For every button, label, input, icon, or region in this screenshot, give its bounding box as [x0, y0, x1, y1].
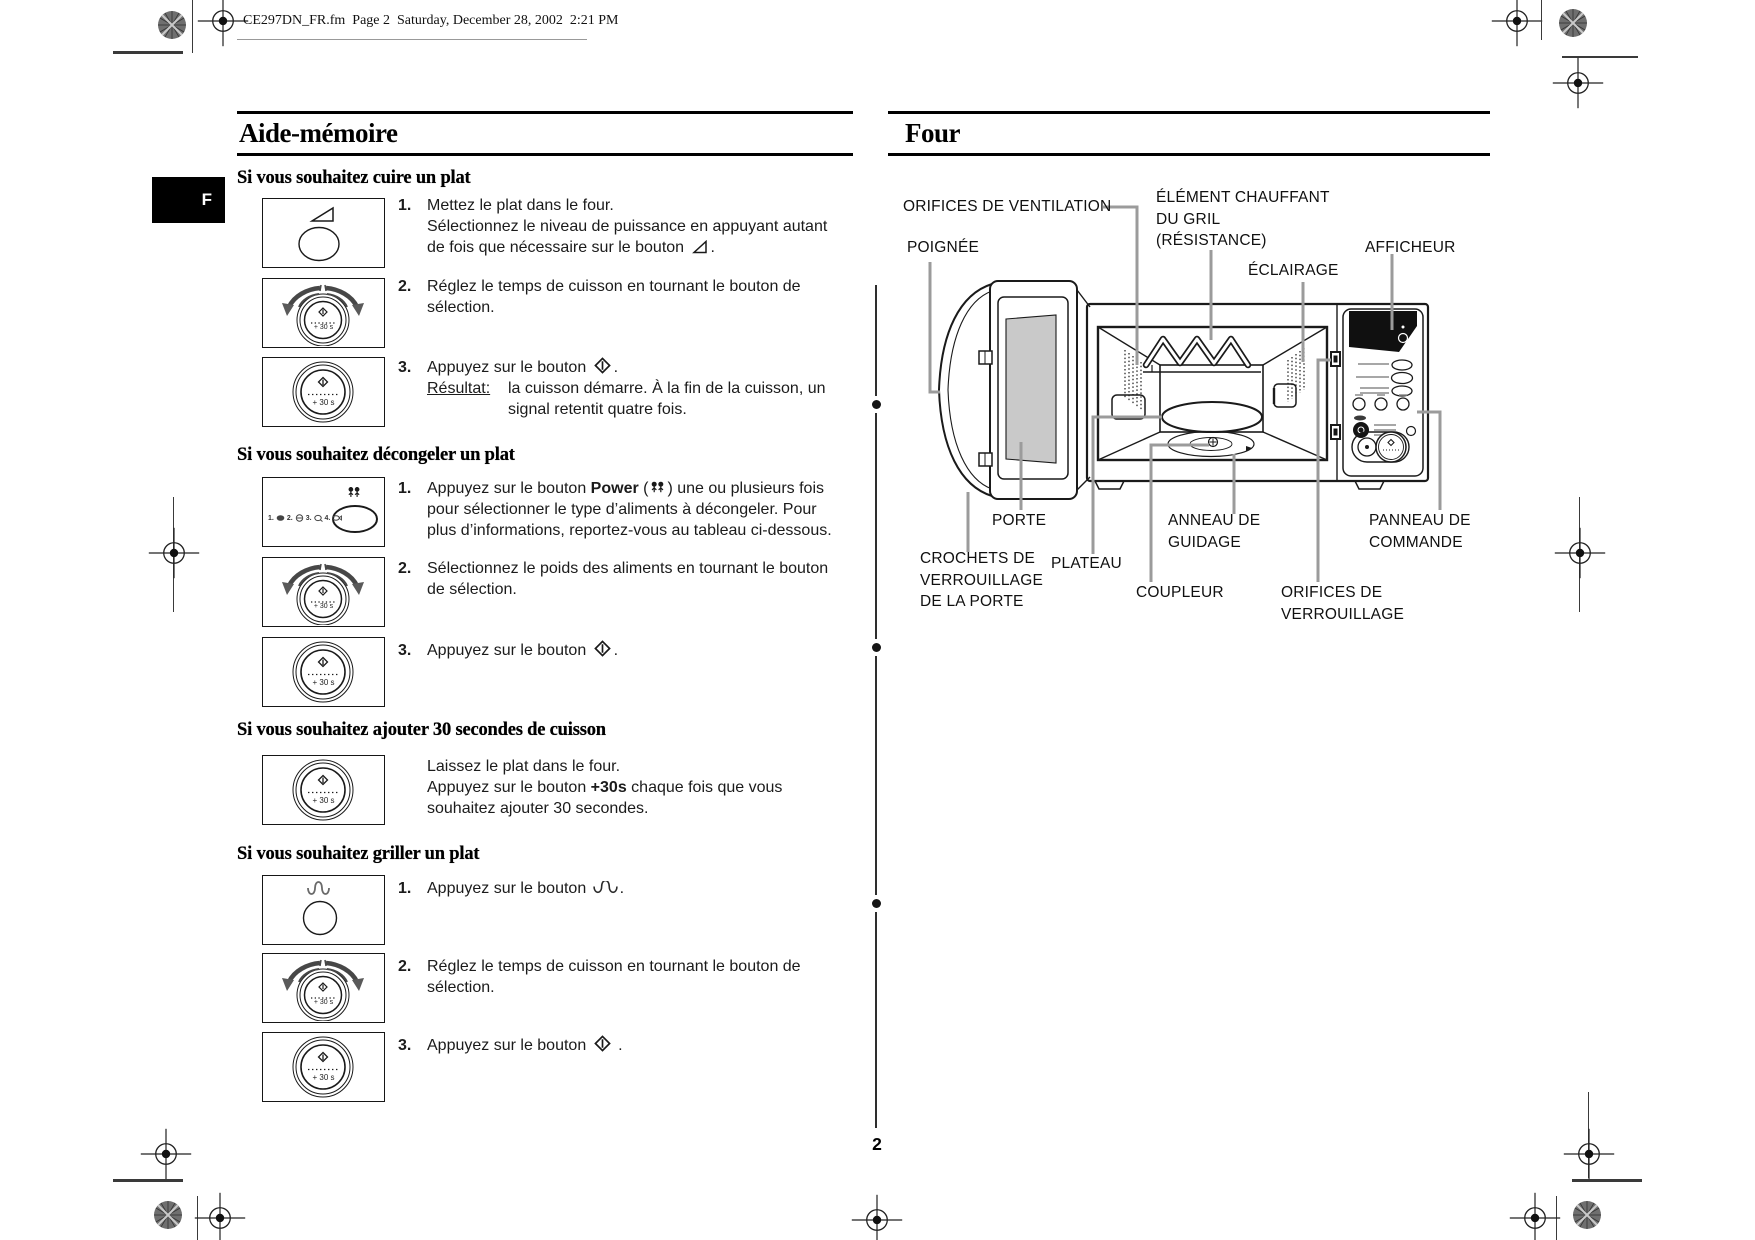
- step-text: Laissez le plat dans le four.: [427, 756, 620, 777]
- step-number: 2.: [398, 958, 411, 975]
- step-number: 3.: [398, 359, 411, 376]
- step-text: Appuyez sur le bouton .: [427, 357, 618, 378]
- label-porte: PORTE: [992, 510, 1046, 532]
- dial-icon: [263, 756, 383, 823]
- label-plateau: PLATEAU: [1051, 553, 1122, 575]
- divider-bullet: [872, 643, 881, 652]
- registration-mark: [1489, 0, 1545, 49]
- pinwheel-mark: [157, 10, 187, 40]
- defrost-display-icon: [263, 478, 383, 545]
- column-divider: [875, 656, 877, 895]
- title-rule: [888, 111, 1490, 114]
- step-text: Réglez le temps de cuisson en tournant l…: [427, 276, 801, 297]
- dial-rotate-icon: [263, 954, 383, 1021]
- title-rule: [888, 153, 1490, 156]
- step-text: Sélectionnez le niveau de puissance en a…: [427, 216, 827, 237]
- dial-label: + 30 s: [263, 678, 384, 687]
- step-number: 2.: [398, 278, 411, 295]
- fish-icon: [332, 514, 342, 522]
- defrost-food-types: 1. 2. 3. 4.: [268, 514, 342, 522]
- crop-line: [113, 1179, 183, 1182]
- title-rule: [237, 153, 853, 156]
- crop-line: [113, 51, 183, 54]
- grill-button-icon: [263, 876, 383, 943]
- crop-line: [1572, 1179, 1642, 1182]
- label-poignee: POIGNÉE: [907, 237, 979, 259]
- illustration-dial: + 30 s: [262, 1032, 385, 1102]
- step-text: sélection.: [427, 977, 495, 998]
- section-heading-griller: Si vous souhaitez griller un plat: [237, 844, 479, 865]
- step-number: 1.: [398, 480, 411, 497]
- registration-mark: [1561, 1126, 1617, 1182]
- step-text: souhaitez ajouter 30 secondes.: [427, 798, 648, 819]
- step-text: plus d’informations, reportez-vous au ta…: [427, 520, 832, 541]
- label-anneau: ANNEAU DE GUIDAGE: [1168, 510, 1260, 553]
- step-text: Appuyez sur le bouton +30s chaque fois q…: [427, 777, 782, 798]
- step-text: Appuyez sur le bouton .: [427, 1035, 623, 1056]
- power-button-icon: [263, 199, 383, 266]
- result-label: Résultat:: [427, 378, 490, 399]
- dial-label: + 30 s: [263, 999, 384, 1006]
- language-tab: F: [152, 177, 225, 223]
- step-text: Appuyez sur le bouton .: [427, 878, 624, 899]
- section-heading-cuire: Si vous souhaitez cuire un plat: [237, 168, 471, 189]
- divider-bullet: [872, 899, 881, 908]
- step-text: Mettez le plat dans le four.: [427, 195, 614, 216]
- defrost-num: 2.: [287, 515, 293, 522]
- dial-icon: [263, 358, 383, 425]
- crop-line: [192, 0, 193, 53]
- illustration-power-button: [262, 198, 385, 268]
- right-column-title: Four: [905, 118, 960, 149]
- dial-label: + 30 s: [263, 796, 384, 805]
- registration-mark: [146, 525, 202, 581]
- start-icon: [594, 640, 611, 657]
- illustration-dial: + 30 s: [262, 755, 385, 825]
- manual-page: CE297DN_FR.fm Page 2 Saturday, December …: [0, 0, 1755, 1240]
- illustration-dial-rotate: + 30 s: [262, 953, 385, 1023]
- illustration-dial: + 30 s: [262, 637, 385, 707]
- crop-line: [1541, 0, 1542, 40]
- dial-label: + 30 s: [263, 324, 384, 331]
- illustration-dial-rotate: + 30 s: [262, 557, 385, 627]
- step-text: Réglez le temps de cuisson en tournant l…: [427, 956, 801, 977]
- illustration-grill-button: [262, 875, 385, 945]
- step-text: pour sélectionner le type d’aliments à d…: [427, 499, 817, 520]
- step-text: sélection.: [427, 297, 495, 318]
- page-number: 2: [860, 1134, 894, 1155]
- dial-rotate-icon: [263, 279, 383, 346]
- defrost-num: 4.: [325, 515, 331, 522]
- section-heading-ajouter: Si vous souhaitez ajouter 30 secondes de…: [237, 720, 606, 741]
- dial-icon: [263, 638, 383, 705]
- header-underline: [237, 39, 587, 40]
- pinwheel-mark: [1572, 1200, 1602, 1230]
- step-number: 3.: [398, 1037, 411, 1054]
- start-icon: [594, 357, 611, 374]
- registration-mark: [1550, 55, 1606, 111]
- step-number: 1.: [398, 880, 411, 897]
- dial-rotate-icon: [263, 558, 383, 625]
- registration-mark: [138, 1126, 194, 1182]
- step-number: 1.: [398, 197, 411, 214]
- title-rule: [237, 111, 853, 114]
- step-text: de fois que nécessaire sur le bouton .: [427, 237, 715, 258]
- result-text: la cuisson démarre. À la fin de la cuiss…: [508, 378, 826, 399]
- step-number: 3.: [398, 642, 411, 659]
- grill-icon: [592, 881, 619, 895]
- column-divider: [875, 912, 877, 1128]
- label-eclairage: ÉCLAIRAGE: [1248, 260, 1339, 282]
- meat-icon: [276, 514, 285, 522]
- label-panneau: PANNEAU DE COMMANDE: [1369, 510, 1471, 553]
- registration-mark: [1507, 1190, 1563, 1240]
- result-text: signal retentit quatre fois.: [508, 399, 687, 420]
- registration-mark: [1552, 525, 1608, 581]
- section-heading-decongeler: Si vous souhaitez décongeler un plat: [237, 445, 515, 466]
- dial-label: + 30 s: [263, 603, 384, 610]
- registration-mark: [849, 1192, 905, 1240]
- poultry-icon: [314, 514, 323, 522]
- label-orifices-verrouillage: ORIFICES DE VERROUILLAGE: [1281, 582, 1404, 625]
- pinwheel-mark: [1558, 8, 1588, 38]
- label-afficheur: AFFICHEUR: [1365, 237, 1456, 259]
- power-icon: [692, 240, 708, 254]
- label-coupleur: COUPLEUR: [1136, 582, 1224, 604]
- registration-mark: [192, 1190, 248, 1240]
- defrost-num: 1.: [268, 515, 274, 522]
- illustration-dial: + 30 s: [262, 357, 385, 427]
- label-ventilation: ORIFICES DE VENTILATION: [903, 196, 1111, 218]
- dial-label: + 30 s: [263, 1073, 384, 1082]
- dial-icon: [263, 1033, 383, 1100]
- step-number: 2.: [398, 560, 411, 577]
- dial-label: + 30 s: [263, 398, 384, 407]
- left-column-title: Aide-mémoire: [239, 118, 397, 149]
- illustration-dial-rotate: + 30 s: [262, 278, 385, 348]
- label-element-chauffant: ÉLÉMENT CHAUFFANT DU GRIL (RÉSISTANCE): [1156, 187, 1330, 252]
- step-text: Sélectionnez le poids des aliments en to…: [427, 558, 828, 579]
- steak-icon: [295, 514, 304, 522]
- start-icon: [594, 1035, 611, 1052]
- step-text: de sélection.: [427, 579, 517, 600]
- file-header: CE297DN_FR.fm Page 2 Saturday, December …: [243, 13, 619, 29]
- step-text: Appuyez sur le bouton Power () une ou pl…: [427, 478, 824, 499]
- pinwheel-mark: [153, 1200, 183, 1230]
- power-level-icon: [649, 480, 666, 495]
- label-crochets: CROCHETS DE VERROUILLAGE DE LA PORTE: [920, 548, 1043, 613]
- defrost-num: 3.: [306, 515, 312, 522]
- illustration-defrost-display: 1. 2. 3. 4.: [262, 477, 385, 547]
- step-text: Appuyez sur le bouton .: [427, 640, 618, 661]
